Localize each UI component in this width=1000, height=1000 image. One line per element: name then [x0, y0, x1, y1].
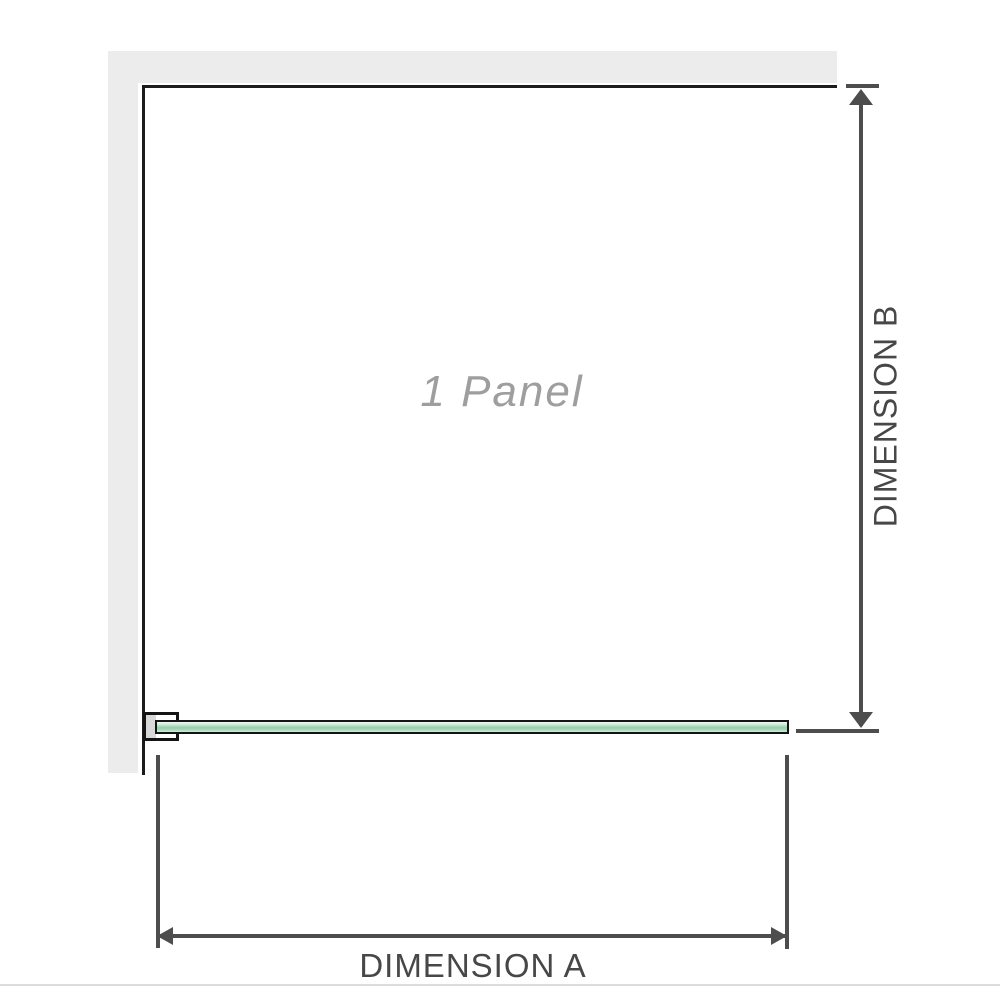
wall-inner-edge-left	[142, 85, 145, 775]
dimension-b-cap-bottom	[796, 729, 879, 733]
dimension-b-cap-top	[846, 84, 879, 88]
dimension-a-extension-line-right	[785, 755, 789, 949]
bottom-rule	[0, 984, 1000, 986]
dimension-a-extension-line-left	[156, 755, 160, 948]
dimension-a-line	[160, 934, 787, 938]
glass-panel	[155, 720, 789, 734]
dimension-a-label: DIMENSION A	[359, 947, 586, 985]
wall-left	[108, 51, 138, 773]
wall-inner-edge-top	[143, 85, 837, 88]
dimension-b-line	[859, 92, 863, 726]
dimension-b-arrowhead-down	[849, 712, 873, 728]
wall-top	[108, 51, 837, 83]
panel-count-label: 1 Panel	[420, 367, 583, 417]
shower-panel-diagram: 1 Panel DIMENSION A DIMENSION B	[0, 0, 1000, 1000]
dimension-a-arrowhead-left	[157, 927, 173, 945]
dimension-a-arrowhead-right	[771, 927, 787, 945]
dimension-b-arrowhead-up	[849, 89, 873, 105]
dimension-b-label: DIMENSION B	[868, 305, 905, 528]
